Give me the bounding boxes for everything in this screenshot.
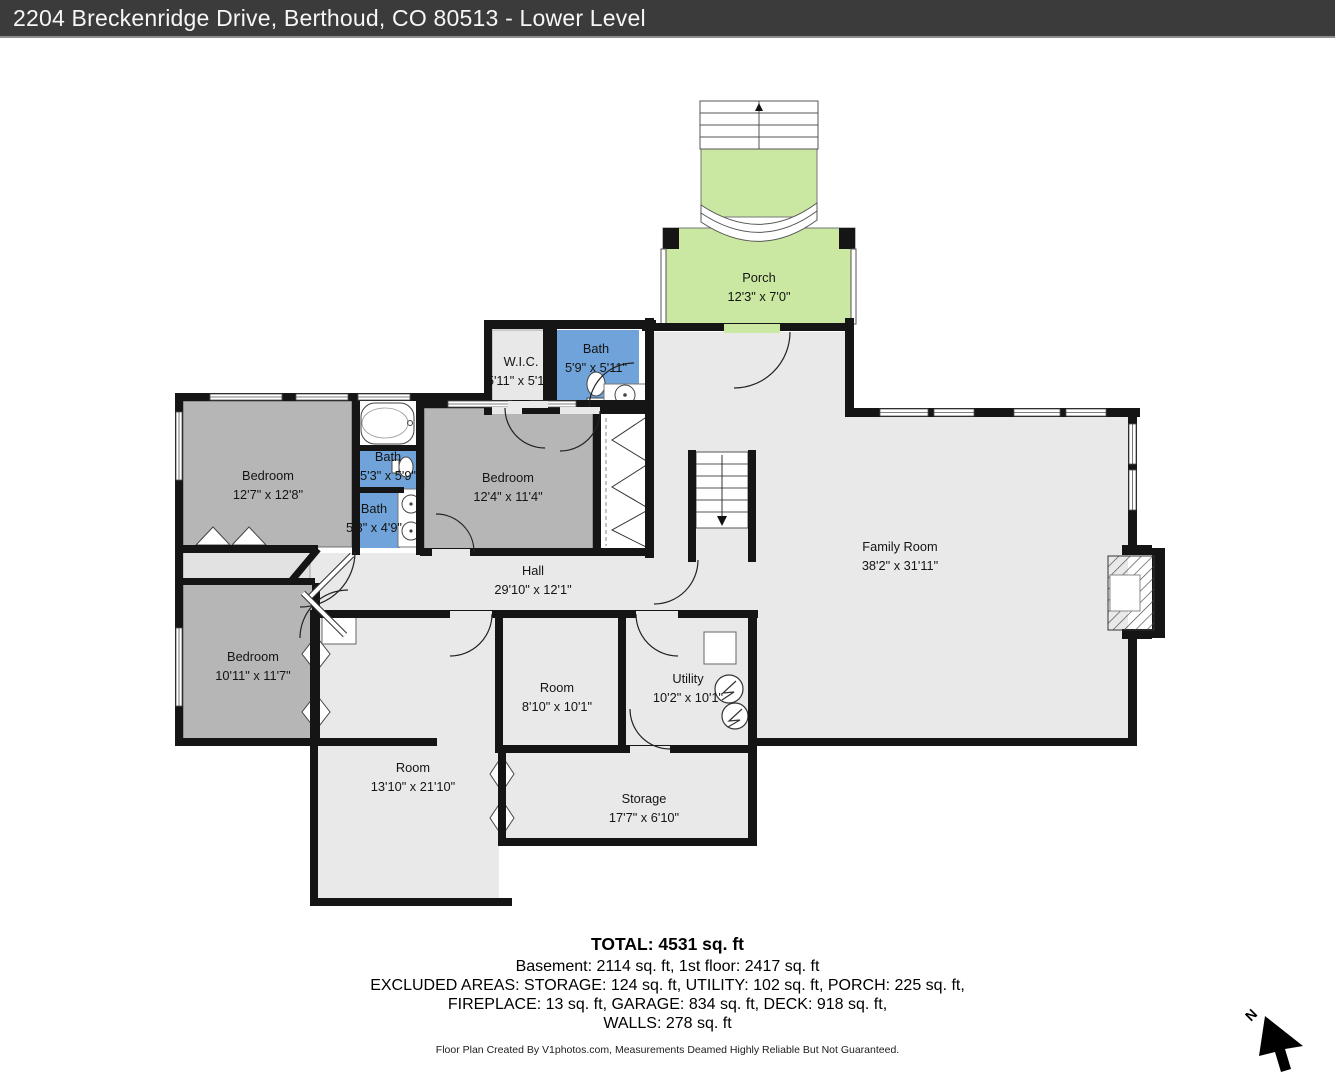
room-label-bath-middle: Bath 5'3" x 5'9" [360, 447, 416, 485]
room-fills-layer [183, 147, 1128, 900]
summary-line-fireplace-garage-deck: FIREPLACE: 13 sq. ft, GARAGE: 834 sq. ft… [0, 996, 1335, 1014]
floor-plan-drawing: N [0, 0, 1335, 1080]
room-label-utility: Utility 10'2" x 10'1" [653, 669, 723, 707]
room-label-family-room: Family Room 38'2" x 31'11" [862, 537, 938, 575]
room-label-room-large: Room 13'10" x 21'10" [371, 758, 455, 796]
fireplace [1108, 545, 1165, 639]
summary-line-floors: Basement: 2114 sq. ft, 1st floor: 2417 s… [0, 958, 1335, 976]
room-label-bath-lower: Bath 5'3" x 4'9" [346, 499, 402, 537]
floor-plan-page: 2204 Breckenridge Drive, Berthoud, CO 80… [0, 0, 1335, 1080]
summary-line-walls: WALLS: 278 sq. ft [0, 1015, 1335, 1033]
room-label-storage: Storage 17'7" x 6'10" [609, 789, 679, 827]
summary-total: TOTAL: 4531 sq. ft [0, 934, 1335, 955]
room-label-bedroom-upper-left: Bedroom 12'7" x 12'8" [233, 466, 303, 504]
room-label-bath-upper: Bath 5'9" x 5'11" [565, 339, 627, 377]
footer-credit: Floor Plan Created By V1photos.com, Meas… [0, 1044, 1335, 1056]
room-label-hall: Hall 29'10" x 12'1" [494, 561, 571, 599]
room-label-bedroom-lower-left: Bedroom 10'11" x 11'7" [215, 647, 290, 685]
staircase-main [696, 452, 748, 528]
summary-line-excluded: EXCLUDED AREAS: STORAGE: 124 sq. ft, UTI… [0, 977, 1335, 995]
room-label-room-small: Room 8'10" x 10'1" [522, 678, 592, 716]
room-label-porch: Porch 12'3" x 7'0" [727, 268, 790, 306]
room-label-bedroom-middle: Bedroom 12'4" x 11'4" [473, 468, 542, 506]
staircase-upper [700, 101, 818, 149]
room-label-wic: W.I.C. 5'11" x 5'11" [487, 352, 555, 390]
